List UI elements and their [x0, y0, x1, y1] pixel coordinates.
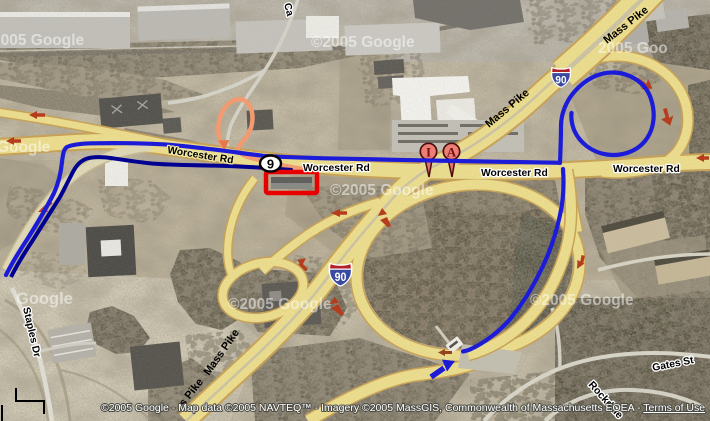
svg-text:90: 90 [335, 272, 347, 285]
svg-text:Google: Google [16, 290, 73, 308]
svg-text:©2005 Google: ©2005 Google [530, 292, 634, 309]
svg-text:A: A [447, 145, 457, 160]
svg-text:Worcester Rd: Worcester Rd [613, 164, 680, 175]
svg-text:©2005 Google: ©2005 Google [330, 182, 434, 199]
svg-text:90: 90 [555, 74, 566, 87]
svg-text:©2005 Google - Map data ©2005: ©2005 Google - Map data ©2005 NAVTEQ™ - … [101, 402, 705, 414]
svg-text:©2005 Google: ©2005 Google [228, 296, 332, 313]
svg-text:Worcester Rd: Worcester Rd [481, 168, 548, 179]
svg-text:©2005 Google: ©2005 Google [311, 34, 415, 51]
svg-text:I: I [426, 145, 431, 160]
svg-text:9: 9 [267, 157, 274, 172]
svg-text:Worcester Rd: Worcester Rd [303, 163, 370, 174]
svg-text:2005 Google: 2005 Google [0, 32, 85, 49]
